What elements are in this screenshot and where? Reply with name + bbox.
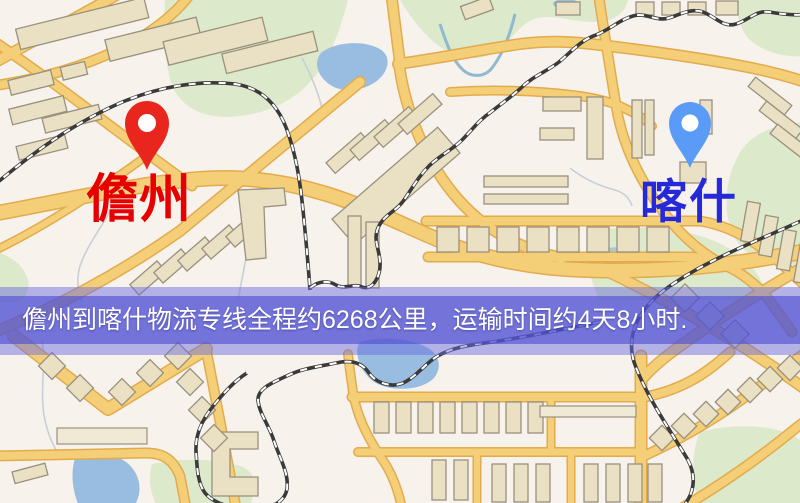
origin-pin-icon[interactable] — [122, 100, 172, 170]
destination-label: 喀什 — [640, 178, 738, 225]
destination-pin-icon[interactable] — [666, 102, 714, 168]
route-info-text: 儋州到喀什物流专线全程约6268公里，运输时间约4天8小时. — [22, 296, 687, 344]
route-info-banner: 儋州到喀什物流专线全程约6268公里，运输时间约4天8小时. — [0, 287, 800, 355]
map-view: 儋州到喀什物流专线全程约6268公里，运输时间约4天8小时. 儋州 喀什 — [0, 0, 800, 503]
map-canvas[interactable] — [0, 0, 800, 503]
origin-label: 儋州 — [86, 174, 192, 226]
